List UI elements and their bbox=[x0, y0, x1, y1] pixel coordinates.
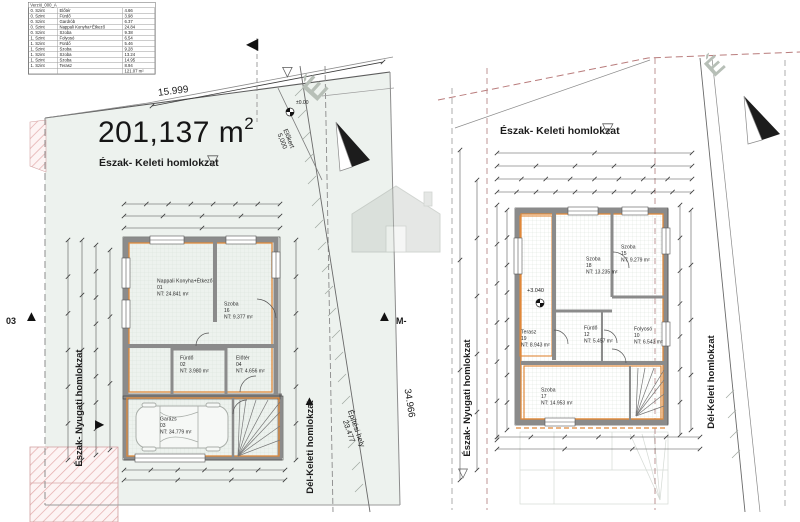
facade-nw-triangle-icon: ▶ bbox=[95, 418, 104, 430]
room-label-furdo-ground: Fürdő 02 NT: 3.980 m² bbox=[180, 355, 209, 375]
facade-label-northwest-upper: Észak- Nyugati homlokzat bbox=[463, 339, 473, 456]
level-mark-upper-label: +3.040 bbox=[527, 288, 544, 294]
table-total-row: 121.07 m² bbox=[29, 68, 155, 74]
ghost-lower-floor bbox=[520, 432, 668, 504]
section-triangle-03-icon: ▲ bbox=[24, 309, 39, 324]
ground-floor-building bbox=[122, 236, 283, 462]
facade-label-northwest-ground: Észak- Nyugati homlokzat bbox=[75, 349, 85, 466]
plan-linework bbox=[0, 0, 800, 522]
north-arrow-upper bbox=[744, 96, 780, 144]
boundary-red-dashed bbox=[438, 52, 800, 100]
site-area-label: 201,137 m2 bbox=[98, 116, 254, 150]
room-label-szoba-ground: Szoba 16 NT: 9.377 m² bbox=[224, 301, 253, 321]
section-triangle-m-icon: ▲ bbox=[377, 309, 392, 324]
level-marker-upper bbox=[536, 299, 544, 307]
level-marker-ground bbox=[286, 108, 294, 116]
facade-label-northeast-ground: Észak- Keleti homlokzat bbox=[99, 158, 219, 170]
upper-floor-building bbox=[514, 207, 670, 428]
section-marker-m: M- bbox=[396, 317, 407, 327]
facade-triangle-upper-icon: ▽ bbox=[602, 121, 614, 136]
room-label-folyoso: Folyosó 10 NT: 6.543 m² bbox=[634, 326, 663, 346]
upper-floor-group bbox=[438, 52, 800, 512]
room-label-terasz: Terasz 19 NT: 8.943 m² bbox=[521, 329, 550, 349]
level-zero-label: ±0.00 bbox=[296, 101, 308, 107]
schedule-total: 121.07 m² bbox=[123, 68, 155, 74]
facade-triangle-icon: ▽ bbox=[207, 153, 219, 168]
facade-nw-upper-triangle-icon: ▽ bbox=[458, 466, 468, 479]
section-marker-03: 03 bbox=[6, 317, 16, 327]
site-plan-group bbox=[30, 38, 400, 522]
room-label-nappali: Nappali Konyha+Étkező 01 NT: 24.841 m² bbox=[157, 278, 213, 298]
marker-triangle-left-icon: ◀ bbox=[246, 37, 258, 53]
facade-label-southeast-upper: Dél-Keleti homlokzat bbox=[707, 335, 717, 428]
room-label-garazs: Garázs 03 NT: 34.779 m² bbox=[160, 416, 191, 436]
room-schedule-table: Verzió_000_A 0. SzintElőtér4.66 0. Szint… bbox=[28, 2, 156, 75]
room-label-szoba-big: Szoba 18 NT: 13.235 m² bbox=[586, 256, 617, 276]
setback-triangle-icon: ▽ bbox=[282, 64, 293, 78]
room-label-furdo12: Fürdő 12 NT: 5.457 m² bbox=[584, 325, 613, 345]
room-label-szoba15: Szoba 15 NT: 9.279 m² bbox=[621, 244, 650, 264]
room-label-eloter: Előtér 04 NT: 4.656 m² bbox=[236, 355, 265, 375]
architectural-drawing-sheet: { "area_table": { "header": "Verzió_000_… bbox=[0, 0, 800, 522]
facade-label-southeast-ground: Dél-Keleti homlokzat bbox=[306, 400, 316, 493]
site-diagonal-1 bbox=[700, 58, 745, 512]
neighbor-hatch-top bbox=[30, 120, 46, 172]
room-label-szoba17: Szoba 17 NT: 14.953 m² bbox=[541, 387, 572, 407]
